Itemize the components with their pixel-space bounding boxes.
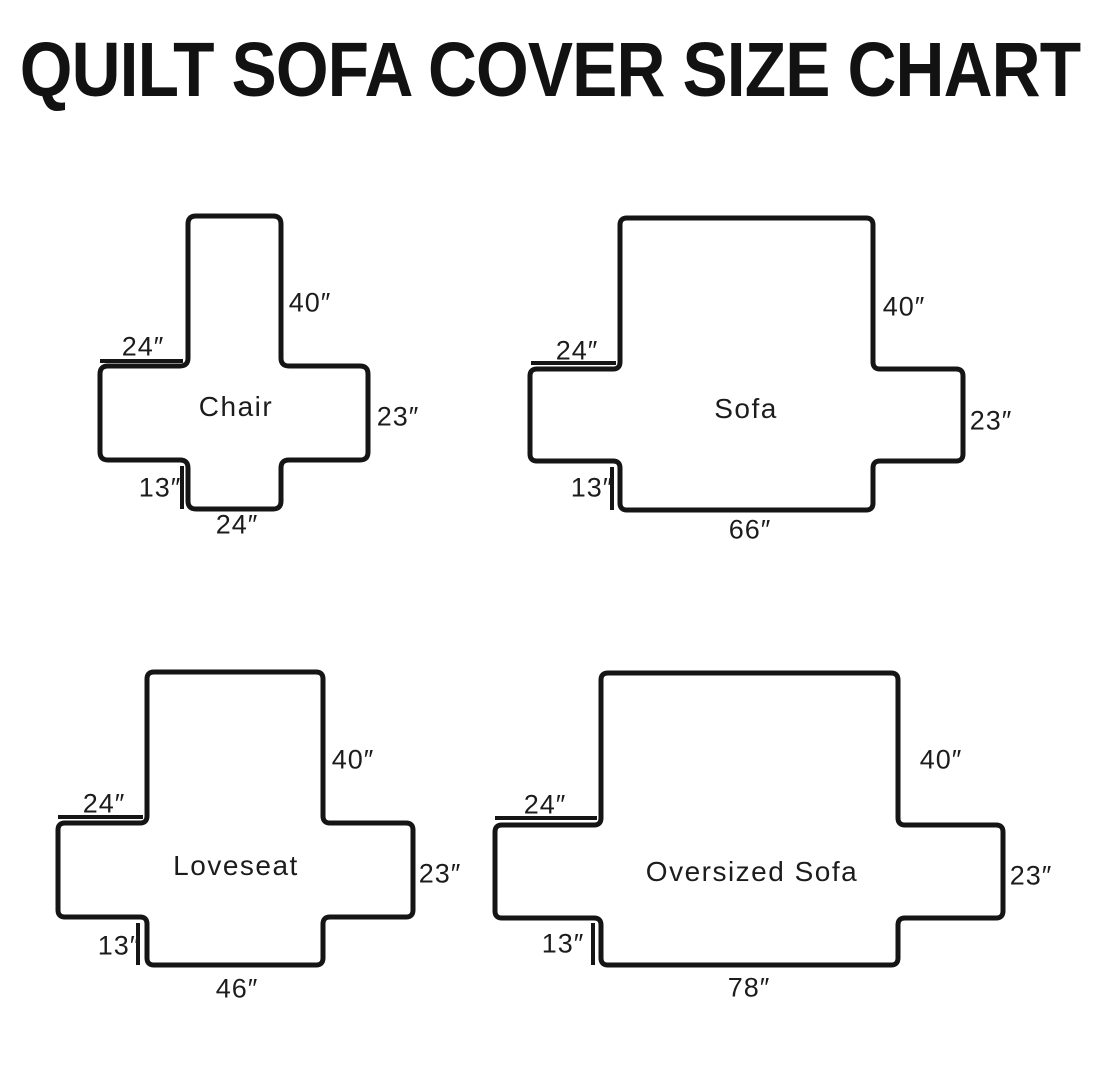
chair-front-skirt-drop-label: 13″ [139,475,182,502]
loveseat-front-skirt-drop-label: 13″ [98,933,141,960]
oversized-sofa-back-height-label: 40″ [920,747,963,774]
oversized-sofa-bottom-width-label: 78″ [728,975,771,1002]
sofa-back-height-label: 40″ [883,294,926,321]
loveseat-back-height-label: 40″ [332,747,375,774]
sofa-arm-top-width-label: 24″ [556,338,599,365]
oversized-sofa-name-label: Oversized Sofa [646,858,858,886]
chair-back-height-label: 40″ [289,290,332,317]
sofa-front-skirt-drop-label: 13″ [571,475,614,502]
oversized-sofa-arm-side-height-label: 23″ [1010,863,1053,890]
chair-name-label: Chair [199,393,273,421]
sofa-arm-side-height-label: 23″ [970,408,1013,435]
loveseat-arm-side-height-label: 23″ [419,861,462,888]
oversized-sofa-front-skirt-drop-label: 13″ [542,931,585,958]
sofa-name-label: Sofa [714,395,778,423]
loveseat-bottom-width-label: 46″ [216,976,259,1003]
chair-bottom-width-label: 24″ [216,512,259,539]
loveseat-name-label: Loveseat [173,852,299,880]
oversized-sofa-arm-top-width-label: 24″ [524,792,567,819]
chair-arm-side-height-label: 23″ [377,404,420,431]
sofa-bottom-width-label: 66″ [729,517,772,544]
size-chart-page: QUILT SOFA COVER SIZE CHART 24″ 40″ Chai… [0,0,1100,1092]
loveseat-arm-top-width-label: 24″ [83,791,126,818]
chair-arm-top-width-label: 24″ [122,334,165,361]
